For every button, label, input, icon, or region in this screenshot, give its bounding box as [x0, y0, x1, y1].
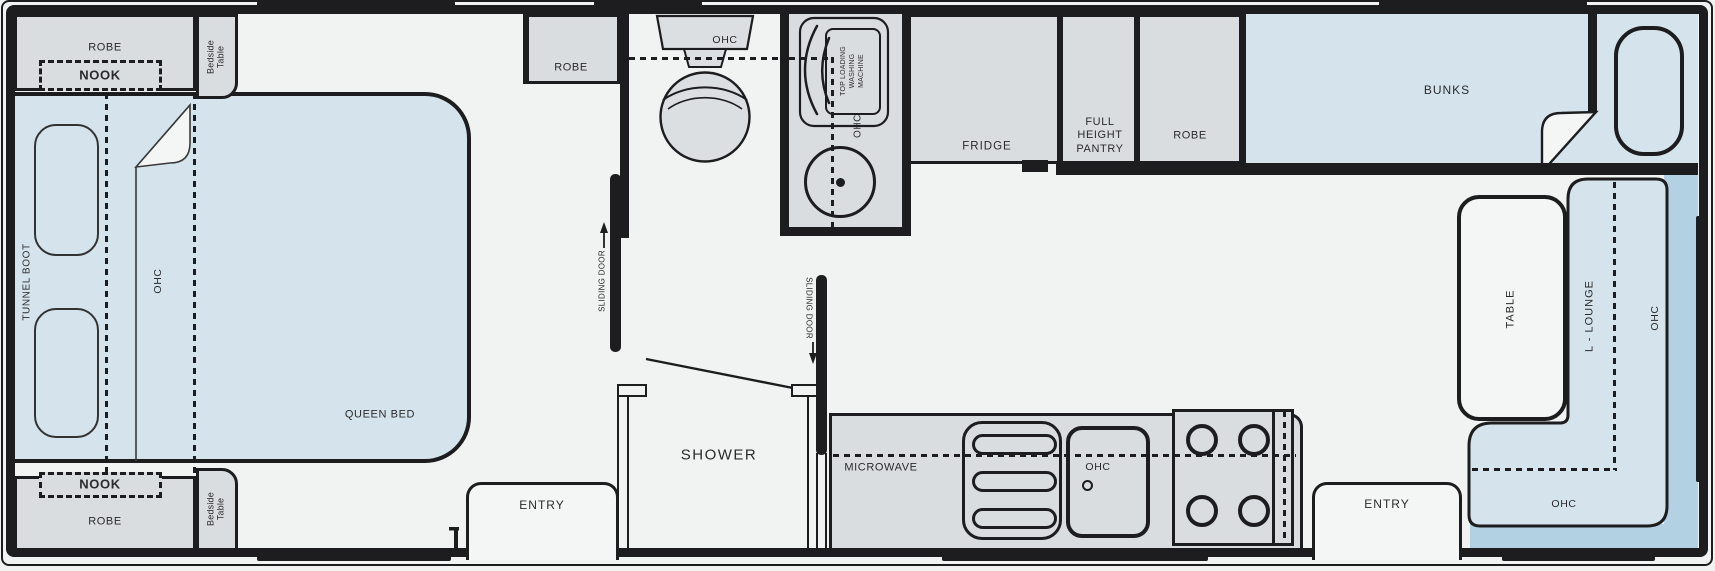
entry-door-front: [466, 482, 619, 560]
dash-lounge-v: [1613, 182, 1616, 470]
shower-label: SHOWER: [681, 446, 758, 463]
dash-washing-h: [789, 57, 833, 60]
sliding-door-bedroom-label: SLIDING DOOR: [597, 250, 606, 312]
bedside-table-top-label: Bedside Table: [206, 40, 227, 74]
entry-rear-label: ENTRY: [1364, 498, 1409, 512]
dash-washing-v: [831, 57, 834, 227]
ohc-lounge-side-label: OHC: [1649, 305, 1661, 330]
ohc-washing-label: OHC: [852, 114, 864, 138]
window-bunks-top: [1379, 1, 1587, 13]
washing-machine-label: TOP LOADING WASHING MACHINE: [840, 46, 866, 96]
robe-front-top-label: ROBE: [88, 42, 122, 55]
microwave-label: MICROWAVE: [844, 462, 917, 475]
table-label: TABLE: [1505, 289, 1518, 328]
robe-rear-label: ROBE: [1173, 130, 1207, 143]
window-bathroom-top: [594, 1, 702, 13]
entry-door-rear: [1312, 482, 1462, 560]
pantry-label: FULL HEIGHT PANTRY: [1076, 116, 1123, 156]
nook-top-label: NOOK: [79, 69, 120, 84]
dash-bathroom: [629, 57, 780, 60]
bunks-label: BUNKS: [1424, 84, 1470, 98]
caravan-floor-plan: ROBE NOOK Bedside Table TUNNEL BOOT OHC …: [0, 0, 1715, 571]
bedside-table-bottom-label: Bedside Table: [206, 492, 227, 526]
l-lounge-label: L - LOUNGE: [1584, 280, 1597, 352]
window-kitchen-bottom: [942, 549, 1208, 561]
fridge-label: FRIDGE: [962, 140, 1011, 153]
queen-bed-label: QUEEN BED: [345, 409, 415, 422]
nook-bottom-label: NOOK: [79, 478, 120, 493]
robe-front-bottom-label: ROBE: [88, 516, 122, 529]
window-rear-side: [1696, 216, 1708, 482]
dash-bedhead-1: [105, 93, 108, 474]
ohc-sink-label: OHC: [1085, 461, 1110, 473]
robe-mid-label: ROBE: [554, 62, 588, 75]
dash-cooktop: [1283, 411, 1286, 545]
ohc-bed-label: OHC: [152, 268, 164, 293]
dash-bedhead-2: [193, 93, 196, 474]
ohc-lounge-rear-label: OHC: [1551, 498, 1576, 510]
dash-lounge-h: [1472, 468, 1617, 471]
tunnel-boot-label: TUNNEL BOOT: [21, 243, 33, 320]
dash-kitchen: [833, 454, 1296, 457]
window-front-top: [257, 1, 455, 13]
sliding-door-kitchen-label: SLIDING DOOR: [804, 277, 813, 339]
ohc-toilet-label: OHC: [712, 34, 737, 46]
entry-front-label: ENTRY: [519, 499, 564, 513]
window-lounge-bottom: [1502, 549, 1655, 561]
window-front-bottom: [257, 549, 451, 561]
